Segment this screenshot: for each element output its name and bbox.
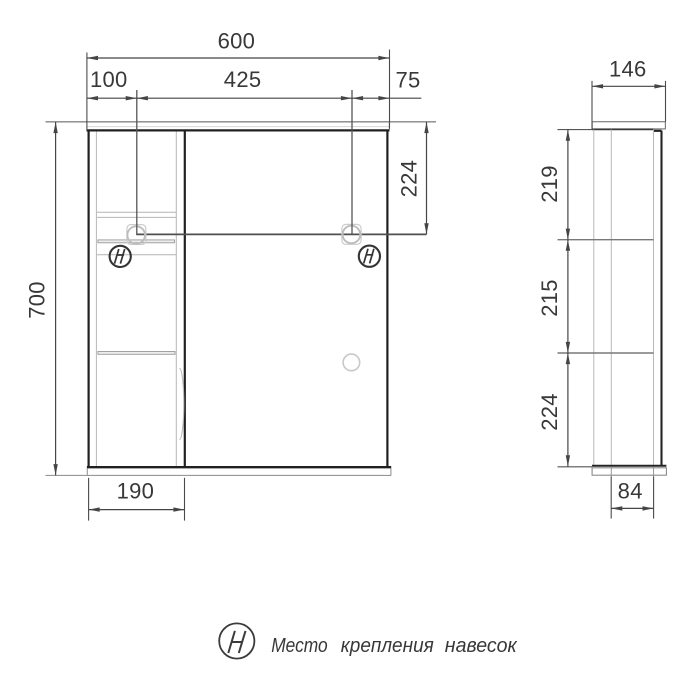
svg-text:425: 425 bbox=[224, 67, 262, 92]
svg-text:Место: Место bbox=[271, 635, 328, 657]
svg-text:84: 84 bbox=[618, 478, 643, 503]
svg-text:крепления: крепления bbox=[341, 635, 434, 657]
svg-text:215: 215 bbox=[537, 279, 562, 317]
svg-text:219: 219 bbox=[537, 165, 562, 203]
svg-text:600: 600 bbox=[218, 29, 256, 54]
svg-text:190: 190 bbox=[117, 478, 155, 503]
svg-text:100: 100 bbox=[90, 67, 128, 92]
svg-text:700: 700 bbox=[24, 281, 49, 319]
svg-text:224: 224 bbox=[537, 393, 562, 431]
svg-text:146: 146 bbox=[609, 57, 647, 82]
svg-text:224: 224 bbox=[396, 160, 421, 198]
svg-text:75: 75 bbox=[395, 67, 420, 92]
svg-text:навесок: навесок bbox=[445, 635, 519, 657]
